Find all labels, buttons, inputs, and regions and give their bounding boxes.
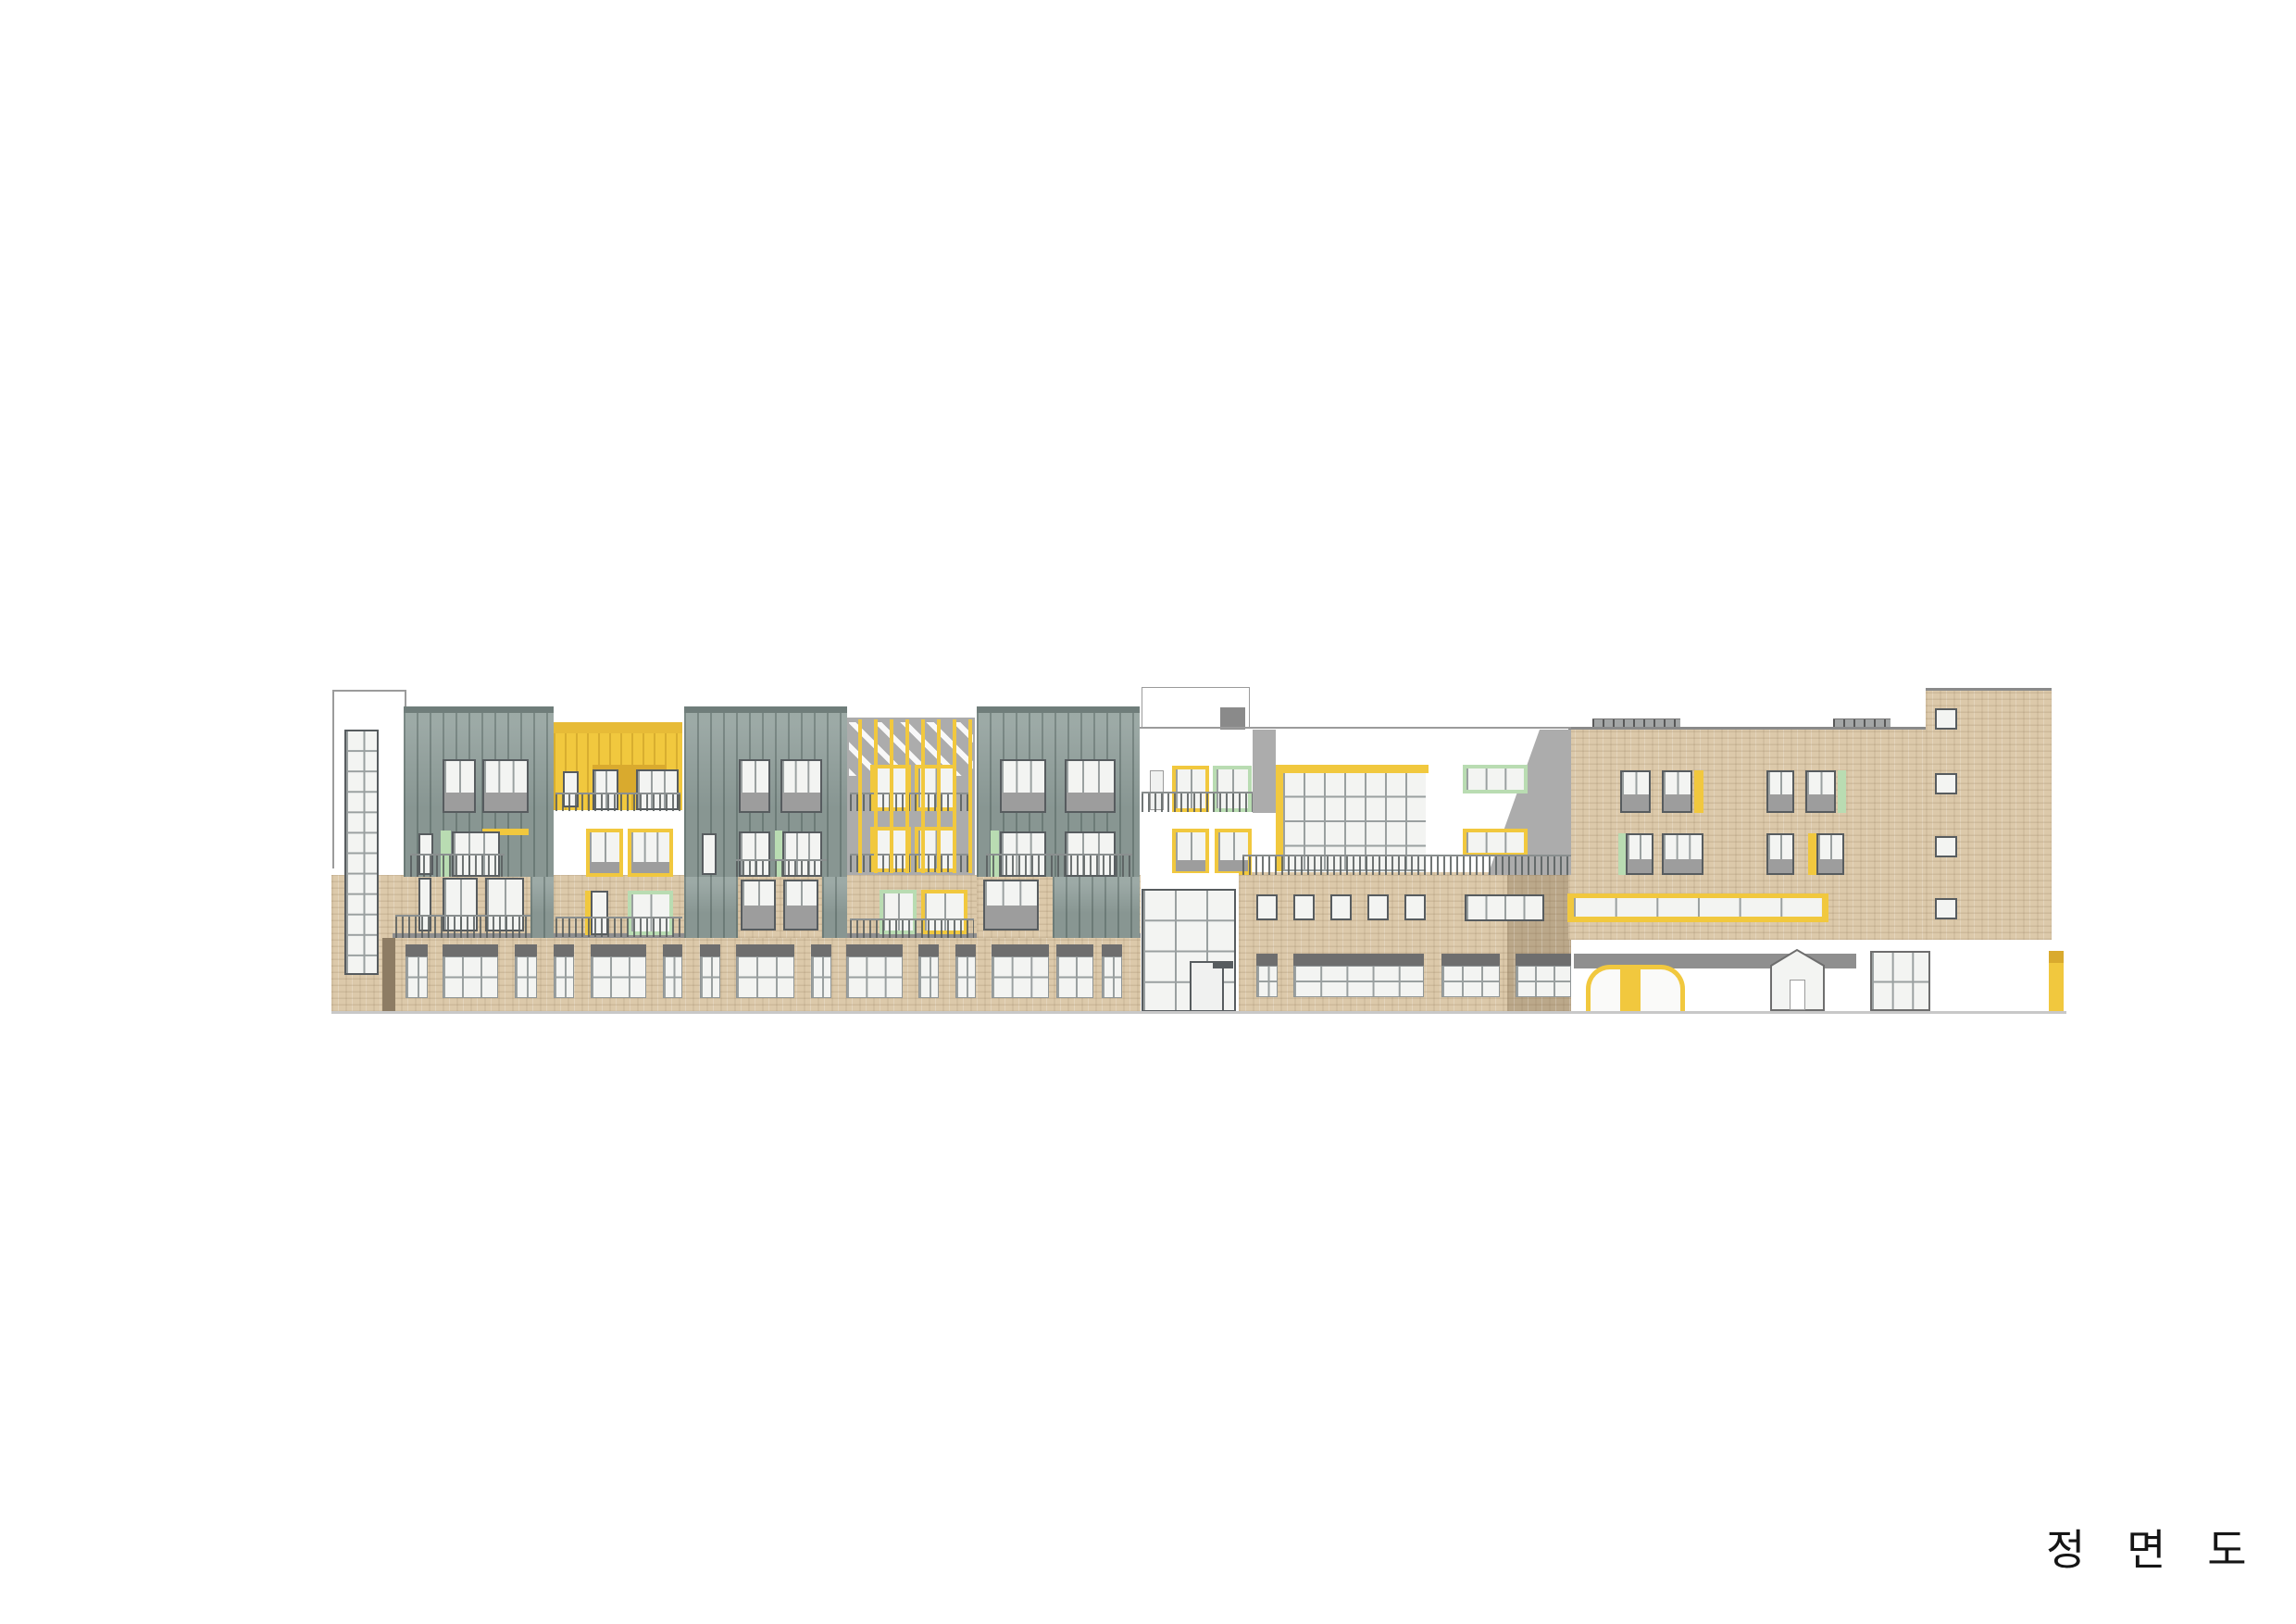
entrance-door-header <box>1213 961 1233 968</box>
t3-f3-win-b-glass <box>1067 761 1114 811</box>
tower-square <box>1935 836 1957 857</box>
window-glass <box>811 956 831 998</box>
gf-window <box>955 944 976 998</box>
fin-5 <box>921 719 925 873</box>
tower-square <box>1935 708 1957 730</box>
window-lintel <box>1256 954 1278 966</box>
bay1-f1-rail <box>555 917 682 937</box>
bay1-f2-win-b-glass <box>631 832 669 873</box>
t3-f2-rail <box>986 854 1132 877</box>
spandrel-panel <box>985 906 1037 929</box>
mid-band-win-wide <box>1465 894 1544 921</box>
t2-leg-l <box>684 877 738 938</box>
solar-array <box>1833 718 1890 727</box>
bay1-f2-win-b <box>628 829 673 877</box>
gf-window <box>1256 954 1278 997</box>
rb-lo-win-glass <box>1818 835 1842 873</box>
mid-band-square-glass <box>1258 896 1276 918</box>
pier-shadow <box>382 938 395 1012</box>
t3-f1-win <box>983 880 1039 931</box>
window-glass <box>955 956 976 998</box>
window-lintel <box>515 944 537 956</box>
window-lintel <box>736 944 794 956</box>
gf-window <box>1102 944 1122 998</box>
window-glass <box>736 956 794 998</box>
tower-square <box>1935 898 1957 919</box>
t2-f1-win-b-glass <box>785 881 817 929</box>
tower2-cap <box>684 706 847 713</box>
mid-f2-win-a <box>1172 829 1209 875</box>
window-glass <box>992 956 1049 998</box>
rb-up-win-glass <box>1622 772 1649 811</box>
window-lintel <box>992 944 1049 956</box>
gf-window <box>515 944 537 998</box>
t1-f3-win-b-glass <box>484 761 527 811</box>
rb-up-win <box>1620 770 1651 813</box>
rb-up-yellow <box>1694 770 1703 813</box>
t2-f1-win-a <box>741 880 776 931</box>
window-lintel <box>1102 944 1122 956</box>
mid-right-win-yellow-glass <box>1466 832 1524 853</box>
window-glass <box>515 956 537 998</box>
mid-right-win-green-glass <box>1466 768 1524 790</box>
drawing-title: 정 면 도 <box>2046 1517 2262 1578</box>
rb-lo-win <box>1662 833 1703 875</box>
fin-6 <box>937 719 941 873</box>
gf-window <box>1516 954 1571 997</box>
yb-rail <box>555 793 680 811</box>
parapet-right-tower <box>1926 688 2052 691</box>
window-glass <box>591 956 646 998</box>
gf-window <box>918 944 939 998</box>
rb-lo-win-glass <box>1628 835 1652 873</box>
rb-up-win <box>1805 770 1836 813</box>
t3-f3-win-b <box>1065 759 1116 813</box>
mid-band-square <box>1293 894 1315 920</box>
t3-f3-win-a-glass <box>1002 761 1044 811</box>
tower-square-glass <box>1937 838 1955 856</box>
rb-up-win <box>1662 770 1692 813</box>
t1-f2-rail <box>410 854 505 877</box>
mid-band-square <box>1256 894 1278 920</box>
rb-lo-win <box>1766 833 1794 875</box>
window-glass <box>846 956 903 998</box>
window-lintel <box>591 944 646 956</box>
tower-square <box>1935 773 1957 794</box>
spandrel-panel <box>1807 794 1834 811</box>
window-lintel <box>554 944 574 956</box>
gf-window <box>591 944 646 998</box>
window-lintel <box>1056 944 1093 956</box>
t1-f3-win-a-glass <box>444 761 474 811</box>
spandrel-panel <box>1664 859 1702 873</box>
window-glass <box>443 956 498 998</box>
terrace-rail <box>1242 855 1571 875</box>
t1-f3-win-b <box>482 759 529 813</box>
spandrel-panel <box>631 862 669 873</box>
rb-up-win-glass <box>1768 772 1792 811</box>
bay1-f2-win-a-glass <box>590 832 619 873</box>
window-glass <box>918 956 939 998</box>
window-lintel <box>811 944 831 956</box>
spandrel-panel <box>1622 794 1649 811</box>
entrance-door <box>1190 961 1224 1012</box>
fin-1 <box>858 719 862 873</box>
mid-f3-rail <box>1142 792 1253 812</box>
mid-band-win-wide-glass <box>1466 896 1542 919</box>
outline-top <box>332 690 406 692</box>
entrance-wall <box>1142 873 1239 889</box>
window-glass <box>700 956 720 998</box>
mid-band-square <box>1330 894 1352 920</box>
fin-7 <box>953 719 956 873</box>
mid-band-square-glass <box>1369 896 1387 918</box>
mid-band-square-glass <box>1406 896 1424 918</box>
gf-window <box>1056 944 1093 998</box>
rb-lo-win-glass <box>1664 835 1702 873</box>
gf-window <box>406 944 428 998</box>
spandrel-panel <box>1664 794 1691 811</box>
t2-f3-win-a <box>739 759 770 813</box>
gf-window <box>443 944 498 998</box>
window-lintel <box>663 944 682 956</box>
t2-f1-win-a-glass <box>742 881 774 929</box>
spandrel-panel <box>1768 859 1792 873</box>
gf-window <box>1293 954 1424 997</box>
tower-square-glass <box>1937 710 1955 728</box>
spandrel-panel <box>1067 793 1114 811</box>
parapet-mid <box>1140 727 1571 729</box>
ribbon-glass <box>1574 898 1822 917</box>
window-glass <box>1293 966 1424 997</box>
rb-up-win-glass <box>1807 772 1834 811</box>
tower1-cap <box>404 706 554 713</box>
spandrel-panel <box>1818 859 1842 873</box>
gf-window <box>992 944 1049 998</box>
elevation-drawing: 정 면 도 <box>0 0 2296 1624</box>
t2-f2-door <box>702 833 717 875</box>
t2-f3-win-a-glass <box>741 761 768 811</box>
window-glass <box>1441 966 1500 997</box>
rb-lo-yellow <box>1808 833 1816 875</box>
gf-window <box>846 944 903 998</box>
glazed-box <box>1870 951 1930 1011</box>
spandrel-panel <box>742 906 774 929</box>
fin-8 <box>968 719 972 873</box>
window-lintel <box>406 944 428 956</box>
parapet-right-main <box>1568 727 1926 730</box>
window-glass <box>1256 966 1278 997</box>
t1-f3-win-a <box>443 759 476 813</box>
spandrel-panel <box>785 906 817 929</box>
t3-f3-win-a <box>1000 759 1046 813</box>
t1-f1-rail <box>395 915 530 938</box>
fin-4 <box>905 719 909 873</box>
mid-band-square <box>1367 894 1389 920</box>
fin-2 <box>874 719 878 873</box>
window-lintel <box>1441 954 1500 966</box>
mid-band-square <box>1404 894 1426 920</box>
outline-left <box>332 690 334 868</box>
ground-line <box>331 1011 2066 1014</box>
spandrel-panel <box>590 862 619 873</box>
rb-lo-green <box>1618 833 1626 875</box>
gf-window <box>1441 954 1500 997</box>
window-glass <box>1056 956 1093 998</box>
window-lintel <box>1516 954 1571 966</box>
window-lintel <box>955 944 976 956</box>
rb-lo-win <box>1816 833 1844 875</box>
t2-f3-win-b-glass <box>782 761 820 811</box>
window-glass <box>406 956 428 998</box>
bollard-cap <box>2049 951 2064 963</box>
fin-3 <box>890 719 893 873</box>
spandrel-panel <box>741 793 768 811</box>
curtain-top <box>1276 765 1429 773</box>
gf-window <box>811 944 831 998</box>
rb-up-win <box>1766 770 1794 813</box>
rb-up-win-glass <box>1664 772 1691 811</box>
mid-band-square-glass <box>1332 896 1350 918</box>
window-lintel <box>846 944 903 956</box>
solar-array <box>1592 718 1680 727</box>
t2-leg-r <box>822 877 847 938</box>
arch-stripe <box>1620 968 1641 1011</box>
rb-up-green <box>1838 770 1846 813</box>
window-glass <box>1516 966 1571 997</box>
tower-square-glass <box>1937 775 1955 793</box>
t2-f3-win-b <box>780 759 822 813</box>
spandrel-panel <box>444 793 474 811</box>
tower-square-glass <box>1937 900 1955 918</box>
mid-band-square-glass <box>1295 896 1313 918</box>
spandrel-panel <box>1176 860 1205 871</box>
window-glass <box>554 956 574 998</box>
mid-right-win-yellow <box>1463 829 1528 856</box>
mid-right-win-green <box>1463 765 1528 793</box>
window-lintel <box>700 944 720 956</box>
window-lintel <box>1293 954 1424 966</box>
gable-door <box>1790 980 1805 1010</box>
gray-pier <box>1253 730 1276 813</box>
window-lintel <box>443 944 498 956</box>
t3-f1-win-glass <box>985 881 1037 929</box>
spandrel-panel <box>782 793 820 811</box>
window-lintel <box>918 944 939 956</box>
spandrel-panel <box>484 793 527 811</box>
stair-shaft <box>344 730 379 975</box>
gf-window <box>554 944 574 998</box>
t2-f2-rail <box>736 859 827 877</box>
bay1-f2-win-a <box>586 829 623 877</box>
rb-lo-win-glass <box>1768 835 1792 873</box>
spandrel-panel <box>1628 859 1652 873</box>
gf-window <box>736 944 794 998</box>
spandrel-panel <box>1002 793 1044 811</box>
spandrel-panel <box>1768 794 1792 811</box>
yellow-block-cap <box>554 722 682 733</box>
t2-f1-win-b <box>783 880 818 931</box>
bollard <box>2049 963 2064 1011</box>
window-glass <box>663 956 682 998</box>
t3-leg <box>1053 877 1140 938</box>
window-glass <box>1102 956 1122 998</box>
mid-f2-win-a-glass <box>1176 832 1205 871</box>
gf-window <box>663 944 682 998</box>
gf-window <box>700 944 720 998</box>
tower3-cap <box>977 706 1140 713</box>
rb-lo-win <box>1626 833 1653 875</box>
t1-leg <box>530 877 554 938</box>
fb-f1-rail <box>850 918 974 938</box>
